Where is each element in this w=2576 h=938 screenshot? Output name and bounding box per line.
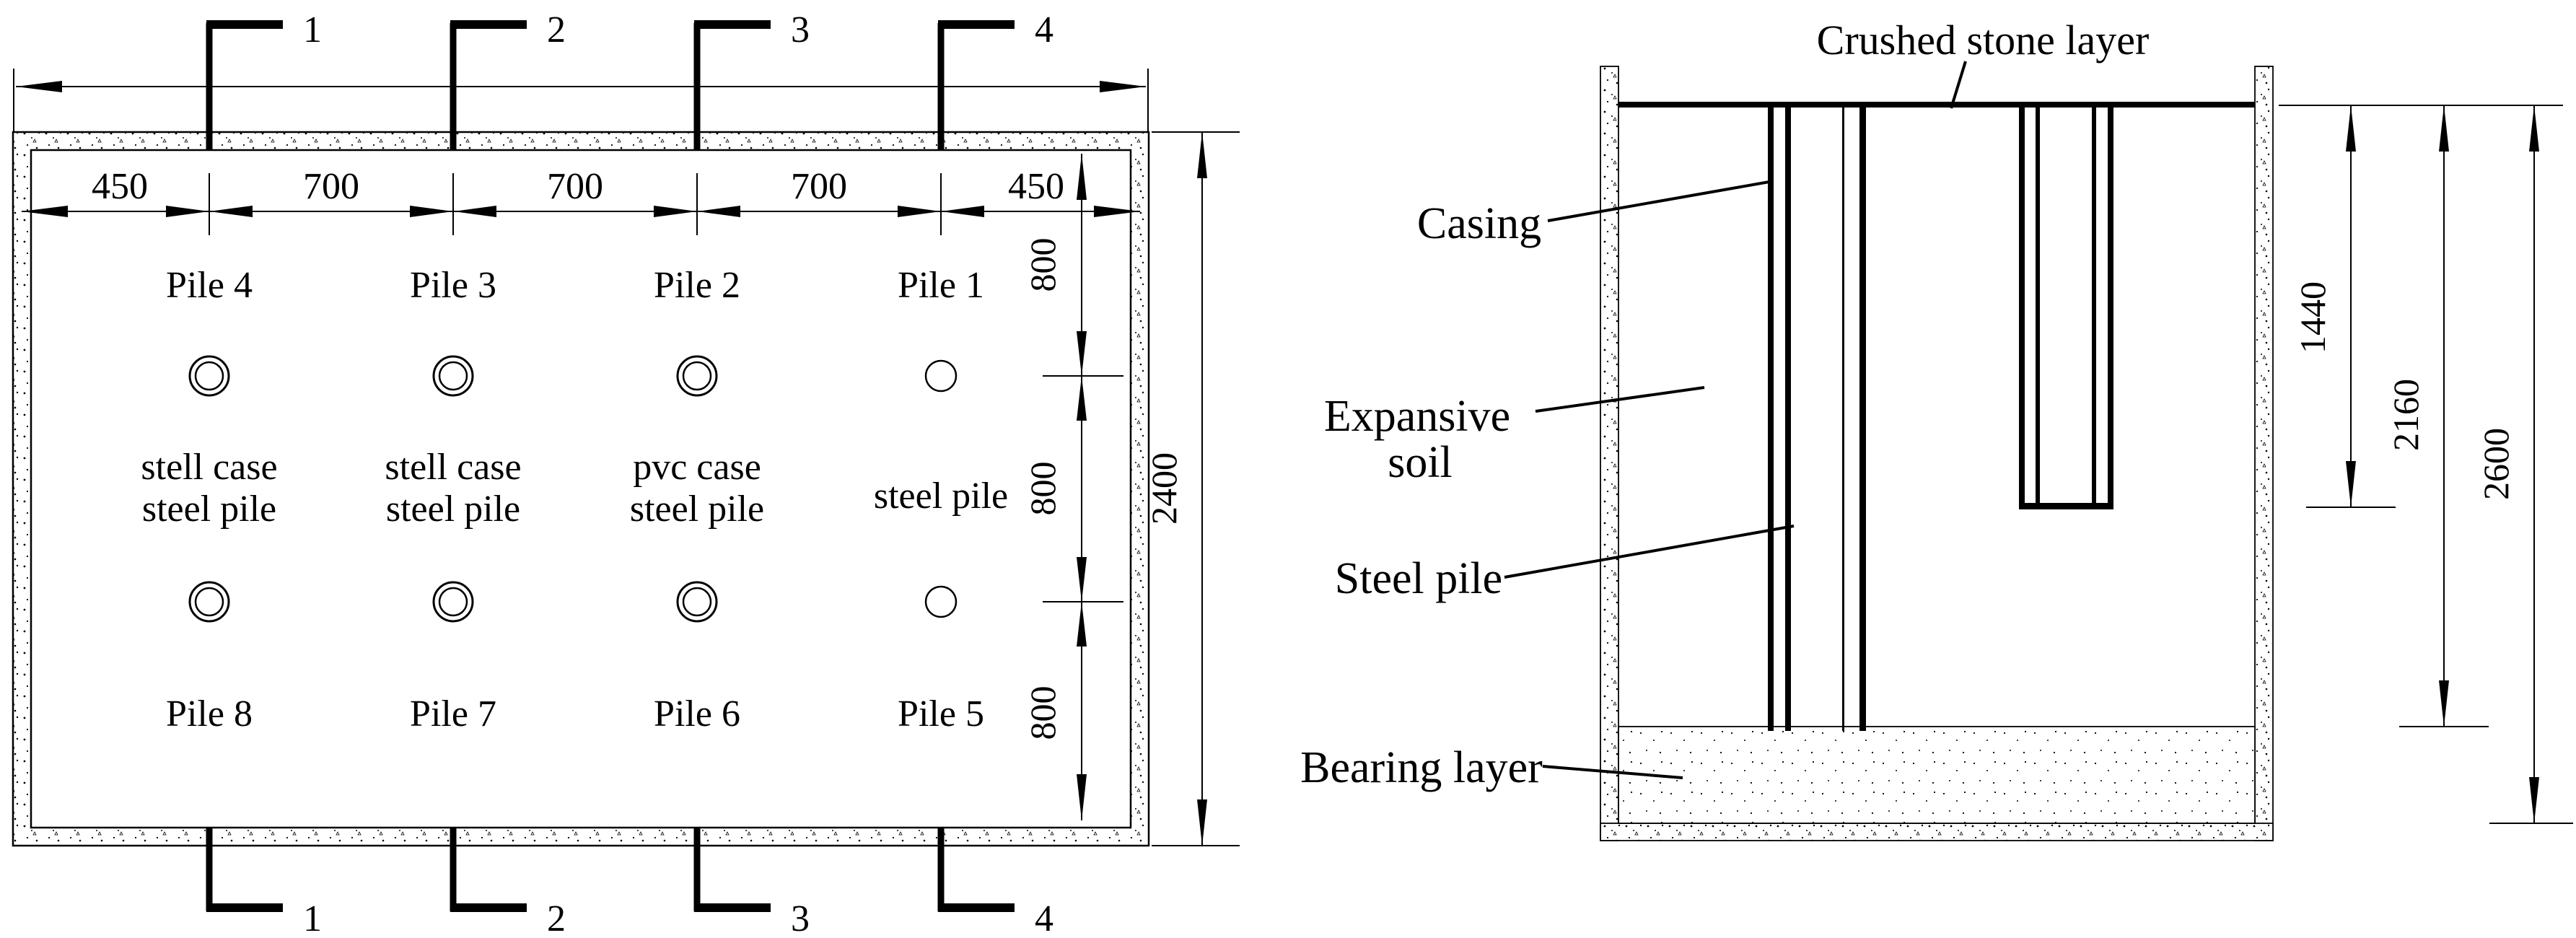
marker-top-2: 2 (450, 9, 566, 149)
pile-2-label: Pile 2 (654, 265, 740, 306)
casing-right-line (1859, 105, 1866, 731)
section-dimensions: 1440 2160 2600 (2279, 105, 2573, 823)
crushed-stone-leader (1951, 61, 1966, 108)
pile-4-label: Pile 4 (166, 265, 253, 306)
steel-pile-leader (1504, 526, 1794, 577)
cased-steel-pile-section (1768, 105, 1866, 731)
casing-left-line (1768, 105, 1774, 731)
case-label: steel pile (142, 488, 276, 530)
section-view: 1440 2160 2600 Crushed stone layer Casi (1300, 17, 2573, 841)
case-label: steel pile (630, 488, 764, 530)
dim-450-left: 450 (92, 166, 148, 207)
marker-label: 4 (1035, 9, 1053, 51)
expansive-soil-label-line1: Expansive (1324, 392, 1510, 441)
dim-450-right: 450 (1008, 166, 1064, 207)
bearing-layer-label: Bearing layer (1300, 743, 1543, 792)
crushed-stone-line (1618, 102, 2255, 108)
dim-800-top: 800 (1022, 238, 1063, 292)
case-label: stell case (385, 447, 521, 488)
marker-label: 3 (791, 9, 810, 51)
bearing-layer-fill (1618, 727, 2255, 823)
pile-7-label: Pile 7 (410, 693, 496, 735)
plan-overall-dimension: 2400 (1144, 132, 1240, 846)
dim-2160: 2160 (2386, 379, 2426, 451)
right-wall (2255, 66, 2273, 841)
plan-top-dimension-line (14, 69, 1148, 132)
pile-left-line (1785, 105, 1791, 731)
expansive-soil-leader (1535, 387, 1704, 411)
marker-label: 2 (547, 9, 566, 51)
marker-label: 1 (303, 898, 322, 938)
case-label: steel pile (386, 488, 520, 530)
bottom-wall (1600, 823, 2273, 841)
short-steel-pile-section (2019, 105, 2113, 509)
marker-top-3: 3 (694, 9, 810, 149)
dim-1440: 1440 (2292, 281, 2333, 354)
dim-700-2: 700 (547, 166, 603, 207)
pile-5-label: Pile 5 (898, 693, 984, 735)
casing-label: Casing (1417, 199, 1541, 248)
marker-label: 2 (547, 898, 566, 938)
marker-top-1: 1 (206, 9, 322, 149)
steel-pile-label: Steel pile (1335, 554, 1502, 603)
case-label: pvc case (633, 447, 761, 488)
arrow-right (1100, 81, 1146, 92)
marker-label: 3 (791, 898, 810, 938)
case-label: steel pile (874, 475, 1008, 517)
case-label: stell case (141, 447, 277, 488)
section-markers-top: 1 2 3 4 (206, 9, 1053, 149)
crushed-stone-layer-label: Crushed stone layer (1817, 17, 2150, 63)
dim-700-1: 700 (303, 166, 359, 207)
pile-3-label: Pile 3 (410, 265, 496, 306)
marker-label: 4 (1035, 898, 1053, 938)
pile-bottom-plate (2019, 503, 2113, 509)
figure-canvas: 1 2 3 4 1 (0, 0, 2576, 938)
marker-label: 1 (303, 9, 322, 51)
dim-1440-line: 1440 (2292, 105, 2396, 507)
dim-2400: 2400 (1144, 452, 1184, 525)
dim-800-bottom: 800 (1022, 686, 1063, 740)
marker-top-4: 4 (938, 9, 1053, 149)
dim-700-3: 700 (791, 166, 847, 207)
dim-2600: 2600 (2476, 428, 2516, 500)
dim-2160-line: 2160 (2386, 105, 2489, 727)
dim-800-middle: 800 (1022, 462, 1063, 516)
pile-6-label: Pile 6 (654, 693, 740, 735)
plan-view: 1 2 3 4 1 (13, 9, 1240, 938)
casing-leader (1548, 182, 1769, 221)
arrow-left (16, 81, 62, 92)
pile-8-label: Pile 8 (166, 693, 253, 735)
pile-layout-figure: 1 2 3 4 1 (0, 0, 2576, 938)
expansive-soil-label-line2: soil (1388, 438, 1453, 487)
pile-right-line (1842, 105, 1844, 731)
pile-1-label: Pile 1 (898, 265, 984, 306)
left-wall (1600, 66, 1618, 841)
dim-2600-line: 2600 (2476, 105, 2573, 823)
